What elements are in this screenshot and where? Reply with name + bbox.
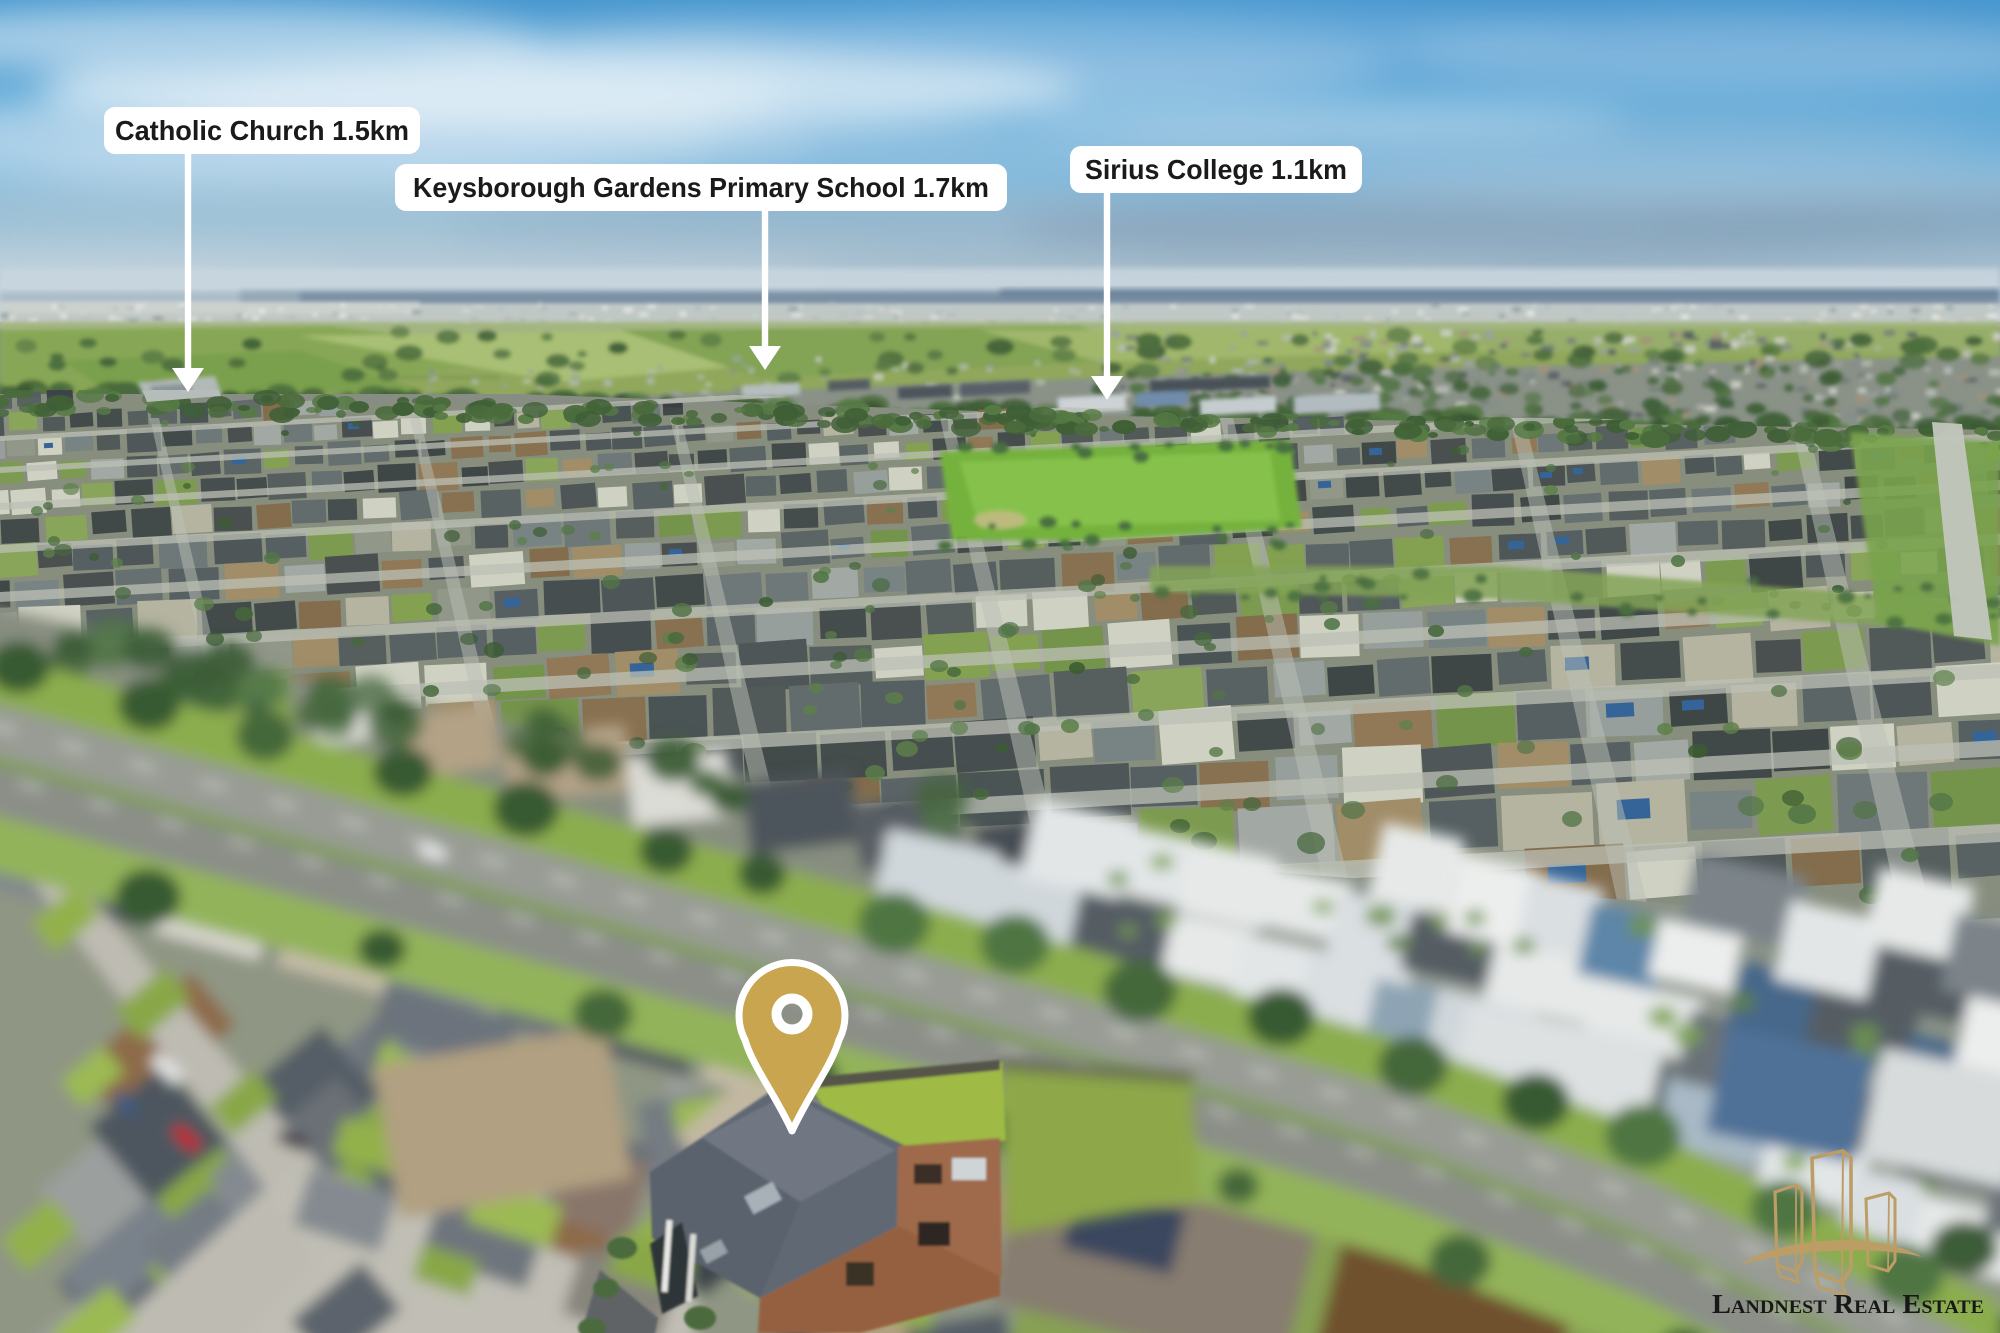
svg-text:Catholic Church 1.5km: Catholic Church 1.5km xyxy=(115,115,409,146)
svg-text:Landnest Real Estate: Landnest Real Estate xyxy=(1712,1289,1984,1319)
svg-text:Keysborough Gardens Primary Sc: Keysborough Gardens Primary School 1.7km xyxy=(413,172,989,203)
svg-text:Sirius College 1.1km: Sirius College 1.1km xyxy=(1085,154,1347,185)
